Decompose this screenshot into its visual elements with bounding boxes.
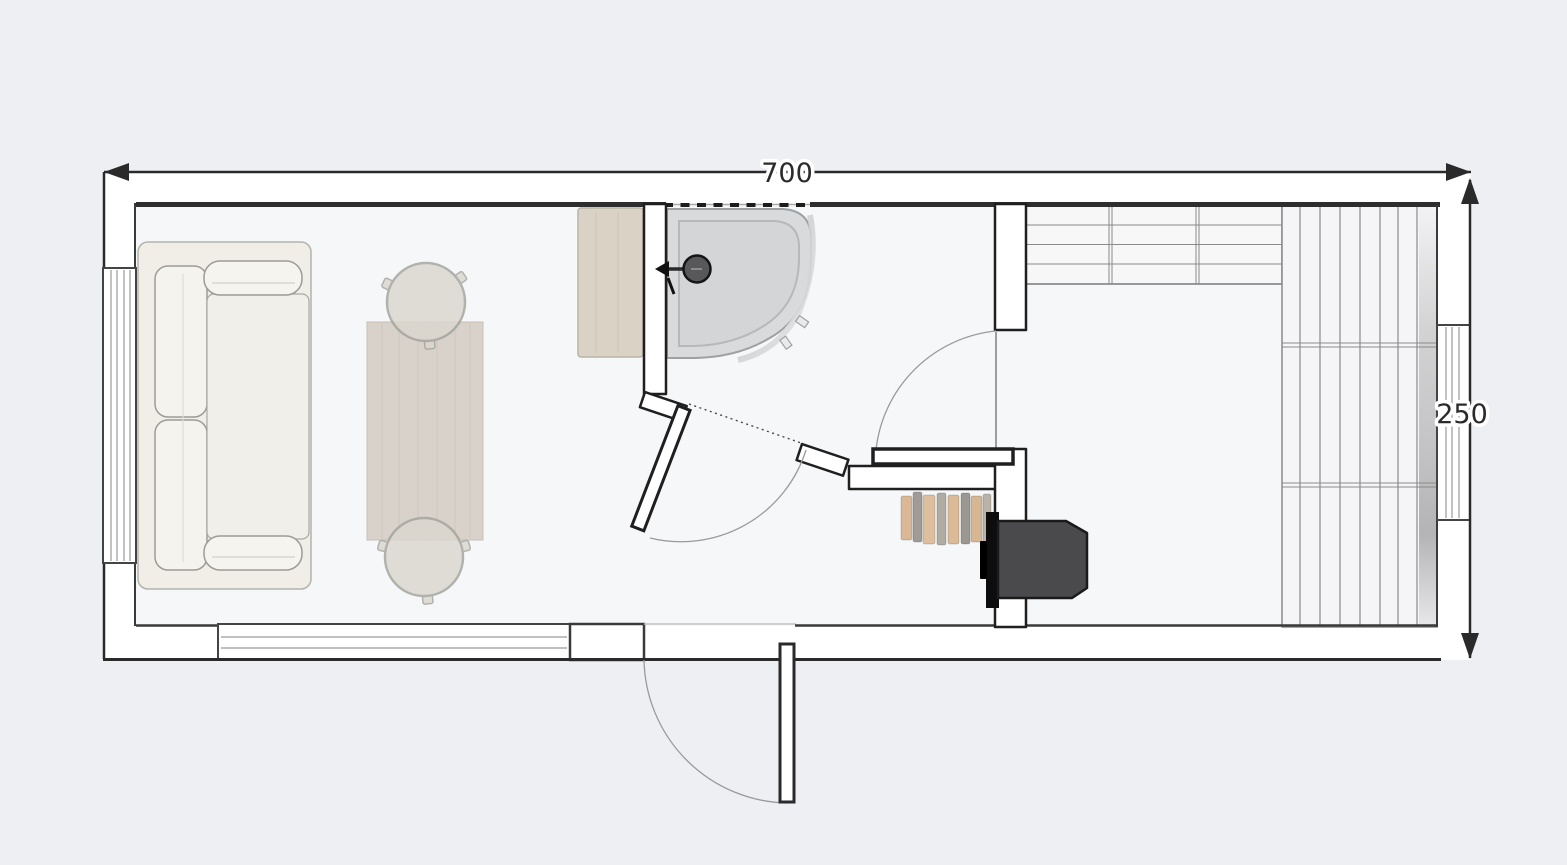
firewood-stack bbox=[901, 492, 991, 545]
wood-stove bbox=[980, 512, 1087, 608]
entrance-door-leaf bbox=[780, 644, 794, 802]
side-room-door-leaf bbox=[873, 449, 1013, 464]
floor-plan-canvas: 700 250 bbox=[0, 0, 1567, 865]
left-window bbox=[103, 268, 136, 563]
dining-table-top bbox=[367, 322, 483, 540]
dimension-width-label: 700 bbox=[761, 158, 813, 189]
side-room-wall-upper bbox=[995, 204, 1026, 330]
kitchen-counter bbox=[578, 208, 643, 357]
entry-wall bbox=[849, 466, 998, 489]
sofa bbox=[138, 242, 311, 589]
shower-room-wall bbox=[644, 204, 666, 394]
dining-table bbox=[367, 322, 483, 540]
dimension-depth-label: 250 bbox=[1436, 399, 1488, 430]
shelving-unit bbox=[1026, 205, 1282, 284]
bottom-window bbox=[218, 624, 570, 660]
slatted-bench bbox=[1282, 205, 1437, 627]
